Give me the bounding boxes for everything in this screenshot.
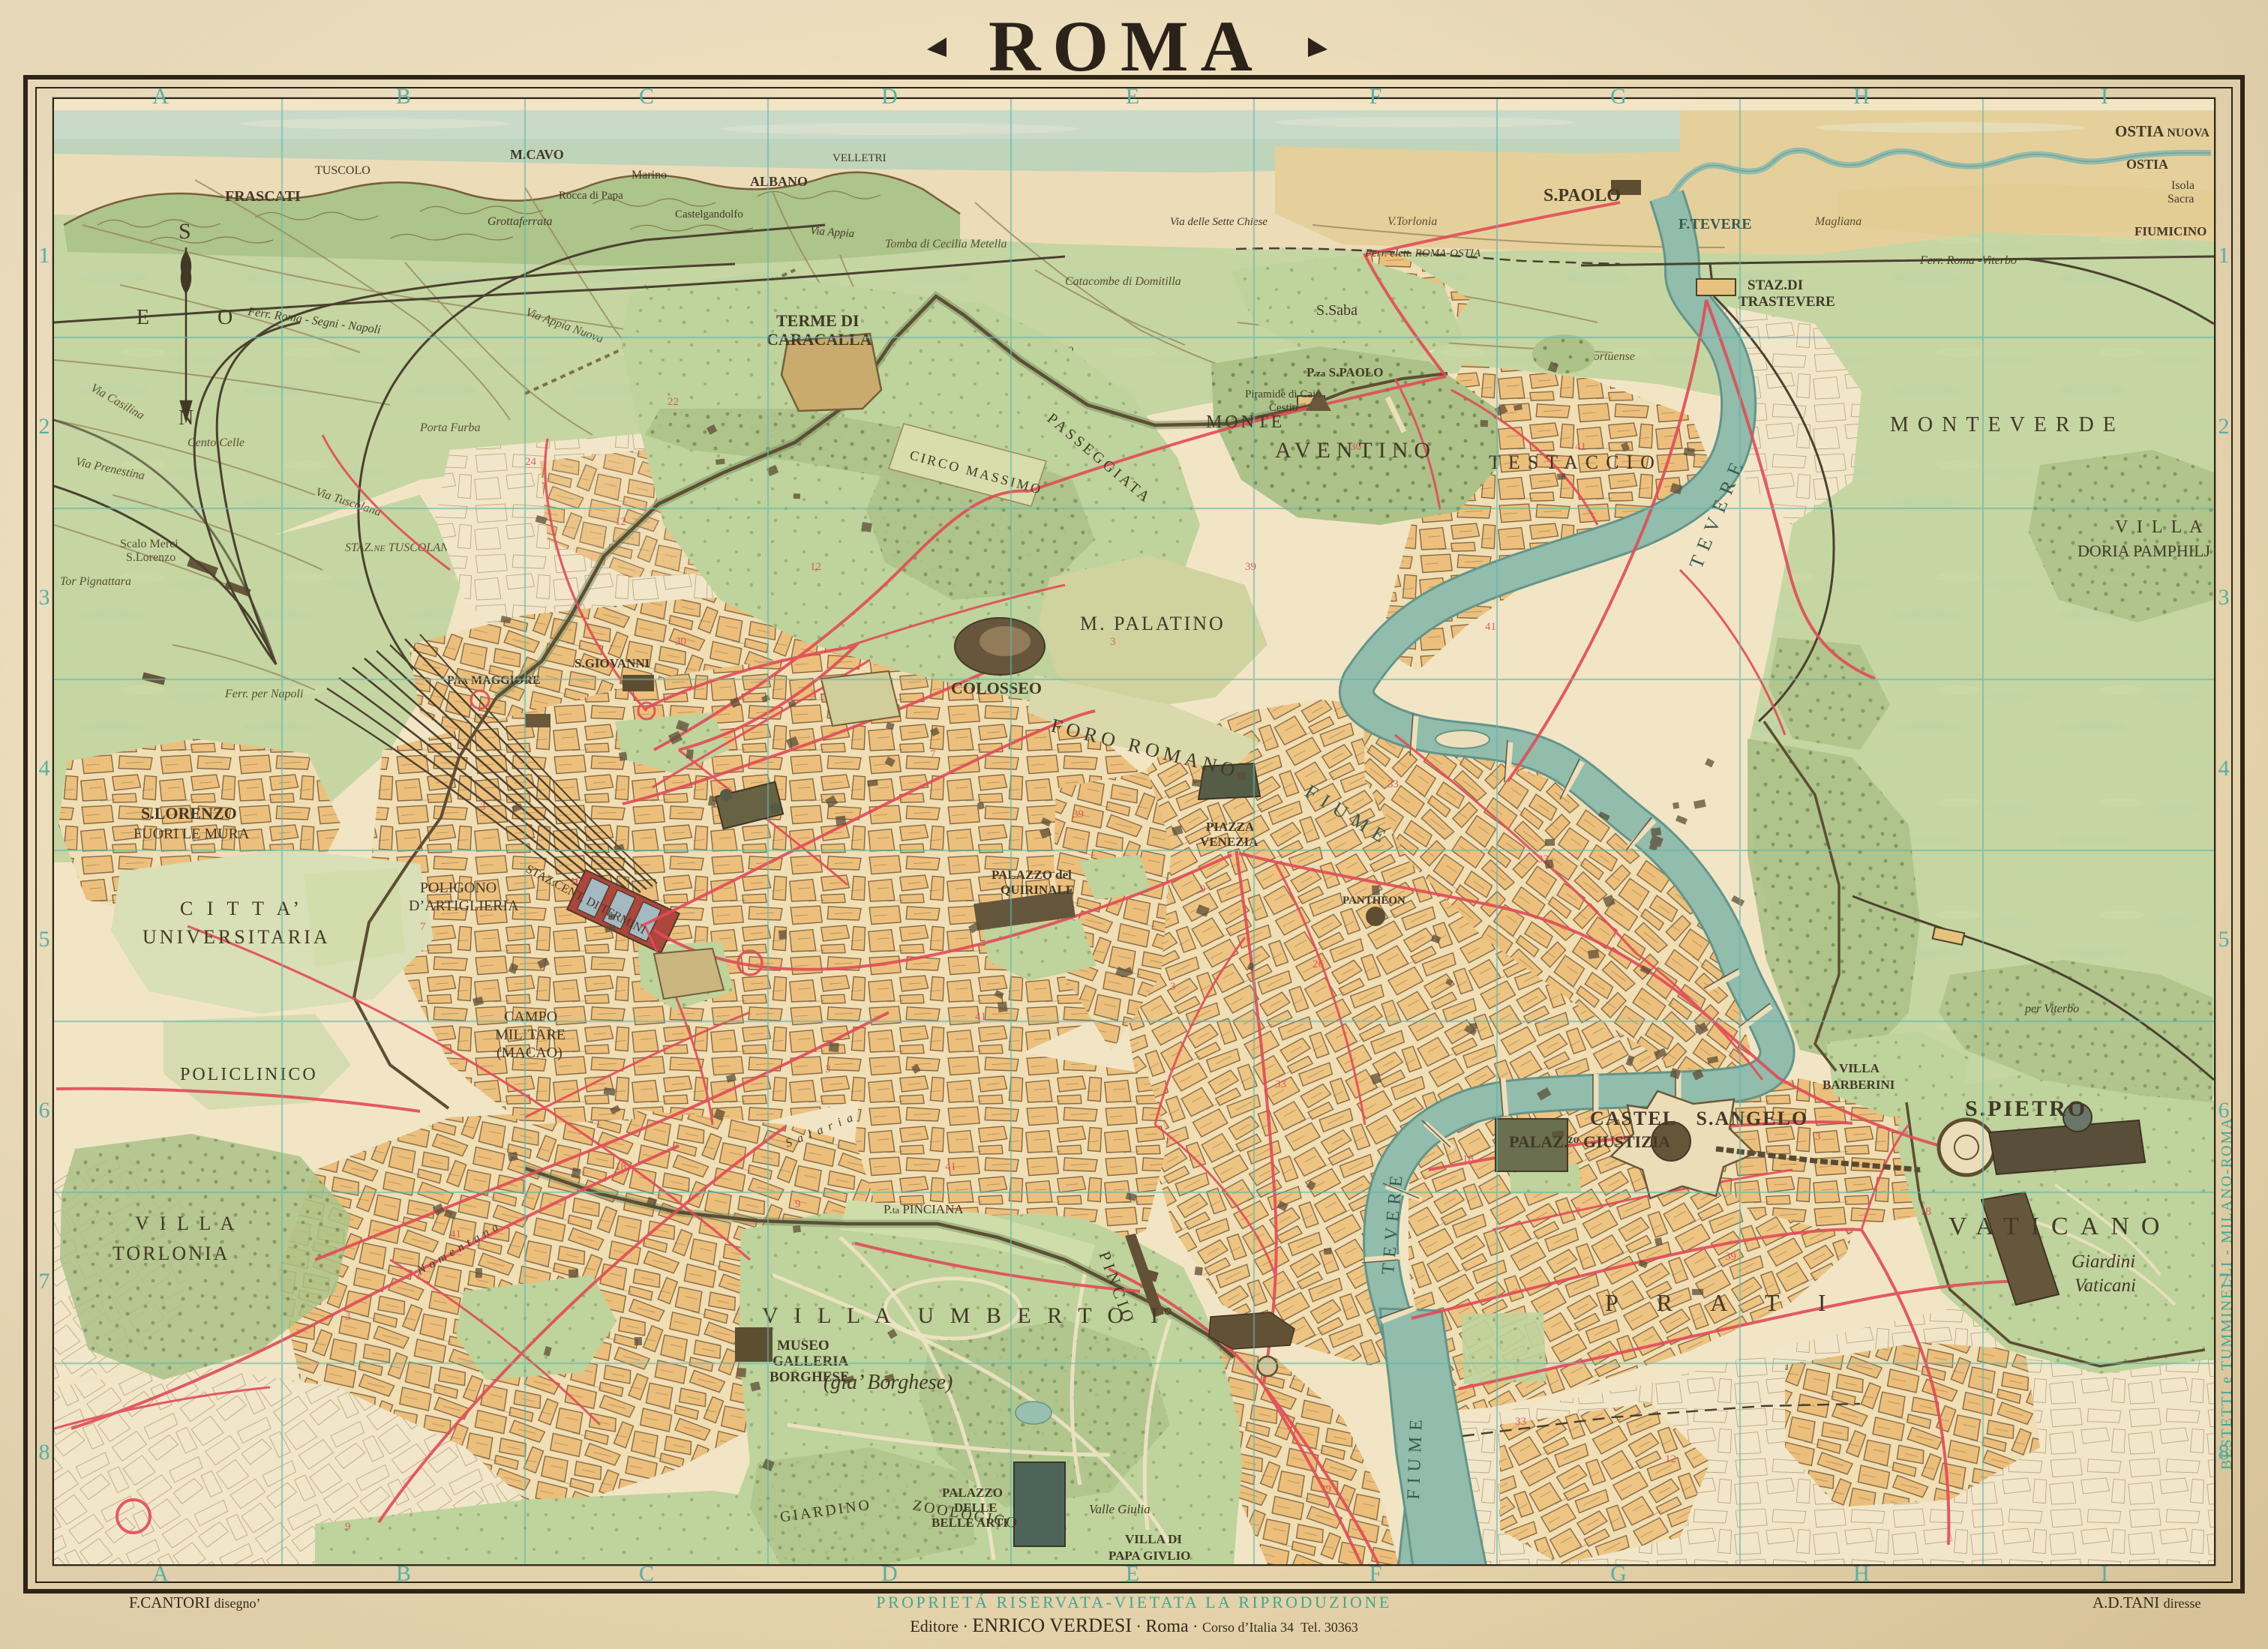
svg-text:E: E (1126, 84, 1139, 109)
svg-text:A: A (152, 1561, 169, 1586)
svg-text:F: F (1369, 84, 1382, 109)
svg-text:BESTETTI e TUMMINELLI - MILANO: BESTETTI e TUMMINELLI - MILANO-ROMA (2218, 1117, 2235, 1470)
svg-text:G: G (1610, 84, 1627, 109)
svg-text:8: 8 (39, 1440, 50, 1465)
svg-text:1: 1 (39, 243, 50, 268)
svg-text:F: F (1369, 1561, 1382, 1586)
svg-text:ROMA: ROMA (988, 6, 1264, 86)
svg-text:E: E (1126, 1561, 1139, 1586)
svg-text:C: C (639, 1561, 654, 1586)
svg-text:2: 2 (39, 414, 50, 439)
svg-text:A.D.TANI diresse: A.D.TANI diresse (2092, 1594, 2201, 1612)
svg-text:5: 5 (39, 927, 50, 952)
svg-text:F.CANTORI disegno’: F.CANTORI disegno’ (129, 1594, 260, 1612)
svg-text:2: 2 (2218, 414, 2230, 439)
svg-text:6: 6 (39, 1098, 50, 1123)
svg-text:C: C (639, 84, 654, 109)
svg-text:B: B (396, 1561, 411, 1586)
svg-text:D: D (881, 1561, 898, 1586)
svg-text:H: H (1853, 1561, 1870, 1586)
svg-text:5: 5 (2218, 927, 2230, 952)
svg-text:H: H (1853, 84, 1870, 109)
svg-text:D: D (881, 84, 898, 109)
svg-text:PROPRIETÁ RISERVATA-VIETATA L: PROPRIETÁ RISERVATA-VIETATA LA RIPRODUZ… (876, 1593, 1392, 1612)
svg-text:3: 3 (39, 585, 50, 610)
svg-text:7: 7 (39, 1269, 50, 1294)
svg-text:3: 3 (2218, 585, 2230, 610)
svg-text:B: B (396, 84, 411, 109)
svg-text:4: 4 (39, 756, 50, 781)
svg-text:4: 4 (2218, 756, 2230, 781)
svg-text:I: I (2101, 1561, 2108, 1586)
svg-text:G: G (1610, 1561, 1627, 1586)
svg-text:A: A (152, 84, 169, 109)
svg-text:I: I (2101, 84, 2108, 109)
svg-text:1: 1 (2218, 243, 2230, 268)
